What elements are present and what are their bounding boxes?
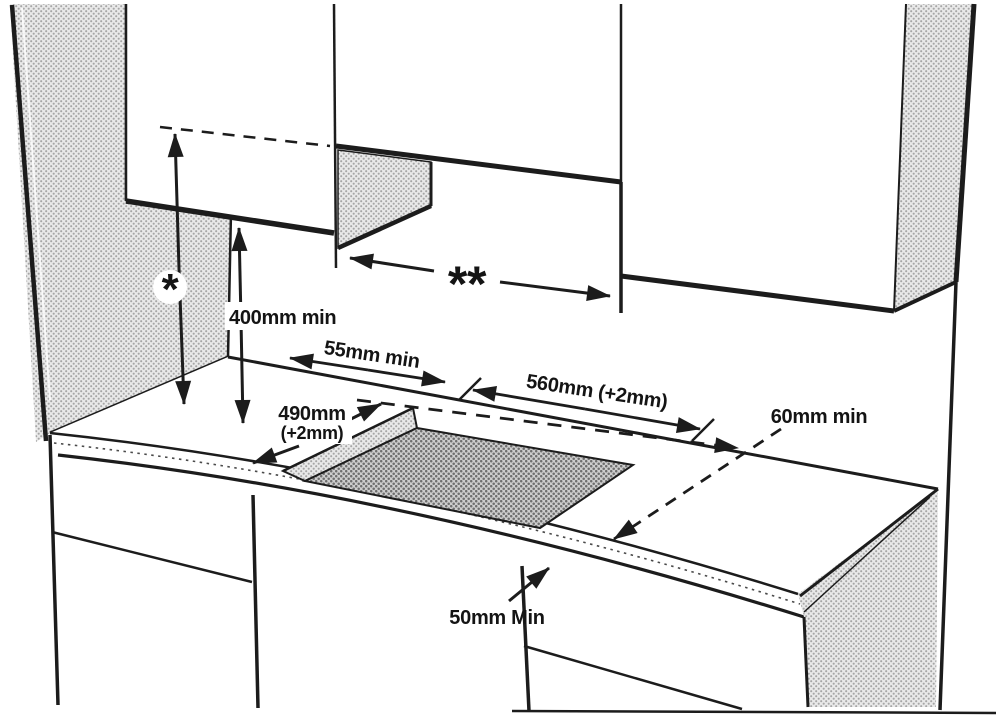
dim-560-tick-left bbox=[459, 378, 481, 400]
upper-right-cabinet bbox=[621, 4, 974, 313]
hob-installation-diagram: * 400mm min ** 55mm min 560mm (+2mm) bbox=[0, 0, 996, 727]
base-cabinet-left-edge bbox=[50, 435, 58, 705]
hood-recess-underside bbox=[338, 150, 431, 248]
star-label: * bbox=[162, 265, 180, 314]
dim-400-arrow-down bbox=[241, 320, 243, 423]
dim-50mm: 50mm Min bbox=[449, 568, 549, 629]
dim-55-arrow-right bbox=[368, 370, 445, 382]
base-cabinet-divider-left bbox=[253, 495, 258, 708]
dim-400-label: 400mm min bbox=[229, 307, 336, 329]
dim-490-label-line2: (+2mm) bbox=[281, 423, 344, 443]
dim-hood-width-double-star: ** bbox=[350, 256, 610, 312]
base-cabinet-right-drawer-line bbox=[524, 646, 742, 709]
dim-490-label-line1: 490mm bbox=[278, 403, 345, 425]
dim-width-arrow-right bbox=[500, 282, 610, 296]
base-cabinet-left-drawer-line bbox=[52, 532, 252, 582]
diagram-canvas: * 400mm min ** 55mm min 560mm (+2mm) bbox=[0, 0, 996, 727]
dim-50-leader bbox=[509, 568, 549, 601]
upper-left-cabinet-right-edge bbox=[334, 4, 336, 268]
hood-recess bbox=[336, 146, 621, 248]
dim-width-arrow-left bbox=[350, 258, 434, 271]
dim-560-tick-right bbox=[692, 419, 714, 441]
floor-line bbox=[512, 711, 996, 713]
dim-60-label: 60mm min bbox=[771, 406, 868, 428]
upper-right-cabinet-face bbox=[621, 4, 906, 311]
right-wall-edge bbox=[940, 282, 956, 710]
double-star-label: ** bbox=[448, 256, 487, 312]
upper-left-cabinet-face bbox=[126, 4, 334, 233]
dim-560-label: 560mm (+2mm) bbox=[525, 371, 669, 414]
dim-50-label: 50mm Min bbox=[449, 607, 544, 629]
